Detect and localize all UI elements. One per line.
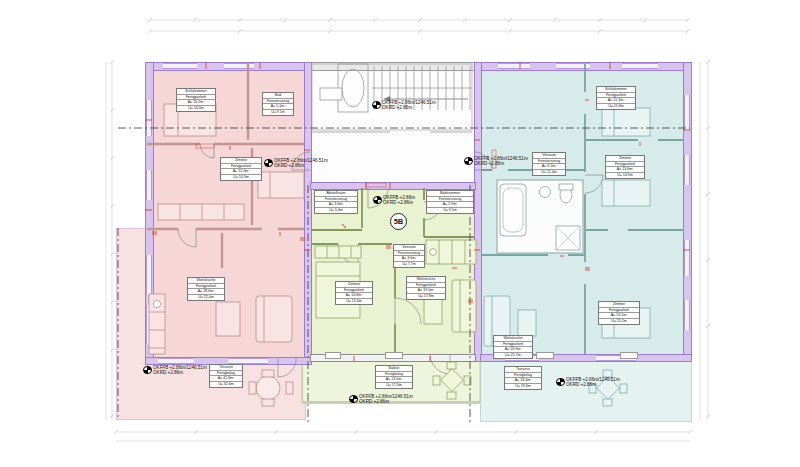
elevation-line: OKRD +2.86m <box>382 105 436 110</box>
survey-point-icon <box>372 101 381 110</box>
window-icon <box>146 100 152 136</box>
window-icon <box>622 63 658 69</box>
window-icon <box>684 155 690 185</box>
elevation-line: OKRD +2.86m <box>274 163 328 168</box>
window-icon <box>684 240 690 276</box>
elevation-note-pink-terrace: OKFFB +2.86m/1246.51mOKRD +2.86m <box>143 365 207 375</box>
elevation-note-green: OKFFB +2.86mOKRD +2.86m <box>373 195 415 205</box>
survey-point-icon <box>373 196 382 205</box>
window-tag <box>385 352 403 359</box>
room-perim: U= 22.4m <box>188 295 224 300</box>
window-icon <box>158 358 194 364</box>
elevation-note-cyan-terrace: OKFFB +2.86m/1246.51mOKRD +2.86m <box>556 377 620 387</box>
room-perim: U= 32.6m <box>210 382 242 387</box>
room-label-cyan-hall: VorraumFeinsteinzeugA= 6.2m²U= 11.4m <box>532 152 566 176</box>
room-perim: U= 9.1m <box>263 110 293 115</box>
room-perim: U= 15.6m <box>336 299 372 304</box>
room-perim: U= 14.3m <box>221 175 261 180</box>
room-label-pink-bed: SchlafzimmerFertigparkettA= 16.2m²U= 16.… <box>176 88 216 112</box>
room-perim: U= 11.4m <box>533 170 565 175</box>
elevation-line: OKRD +2.86m <box>383 200 415 205</box>
wall-top-green <box>310 182 476 190</box>
unit-number-badge: 5B <box>390 213 407 230</box>
room-label-pink-terrace: TerrasseFertigbelagA= 41.8m²U= 32.6m <box>209 364 243 388</box>
elevation-note-stair: OKFFB +2.86m/1246.51mOKRD +2.86m <box>372 100 436 110</box>
survey-point-icon <box>349 395 358 404</box>
window-icon <box>684 300 690 330</box>
room-label-green-balcony: BalkonFertigbelagA= 13.0m²U= 17.3m <box>375 365 413 389</box>
survey-point-icon <box>264 159 273 168</box>
wall-divider-east <box>474 62 482 362</box>
room-label-pink-bad: BadFeinsteinzeugA= 5.1m²U= 9.1m <box>262 92 294 116</box>
wall-top-stair <box>310 62 476 71</box>
stairwell <box>310 62 474 182</box>
elevation-line: OKRD +2.86m <box>566 382 620 387</box>
room-perim: U= 15.2m <box>599 319 639 324</box>
window-icon <box>556 63 590 69</box>
window-icon <box>163 63 197 69</box>
window-icon <box>498 63 530 69</box>
window-tag <box>536 352 554 359</box>
room-perim: U= 16.4m <box>177 106 215 111</box>
unit-cyan <box>480 62 690 360</box>
room-label-cyan-terrace: TerrasseFertigbelagA= 18.4m²U= 19.6m <box>504 366 542 390</box>
window-icon <box>684 95 690 131</box>
room-perim: U= 17.3m <box>376 383 412 388</box>
survey-point-icon <box>556 378 565 387</box>
room-perim: U= 14.9m <box>606 173 644 178</box>
room-perim: U= 17.8m <box>407 294 445 299</box>
window-tag <box>620 352 638 359</box>
room-perim: U= 15.8m <box>597 104 635 109</box>
window-icon <box>224 63 254 69</box>
elevation-line: OKRD +2.86m <box>359 399 413 404</box>
room-label-cyan-bed1: SchlafzimmerFertigparkettA= 15.3m²U= 15.… <box>596 86 636 110</box>
room-label-cyan-bed3: ZimmerFertigparkettA= 14.1m²U= 15.2m <box>598 301 640 325</box>
survey-point-icon <box>464 157 473 166</box>
window-icon <box>146 170 152 200</box>
room-label-green-bad: BadezimmerFeinsteinzeugA= 5.9m²U= 9.5m <box>426 190 474 214</box>
room-perim: U= 19.6m <box>505 384 541 389</box>
room-label-green-living: WohnkücheFertigparkettA= 19.0m²U= 17.8m <box>406 276 446 300</box>
wall-divider-west <box>304 62 312 365</box>
room-perim: U= 9.5m <box>427 208 473 213</box>
window-icon <box>146 255 152 295</box>
room-perim: U= 7.7m <box>394 262 424 267</box>
elevation-line: OKRD +2.86m <box>153 370 207 375</box>
room-label-green-bed: ZimmerFertigparkettA= 14.8m²U= 15.6m <box>335 281 373 305</box>
room-perim: U= 21.7m <box>494 353 532 358</box>
room-label-pink-living: WohnkücheFertigparkettA= 28.6m²U= 22.4m <box>187 277 225 301</box>
survey-point-icon <box>143 366 152 375</box>
window-icon <box>228 358 268 364</box>
room-label-pink-room: ZimmerFertigparkettA= 12.4m²U= 14.3m <box>220 157 262 181</box>
room-label-cyan-bed2: ZimmerFertigparkettA= 13.6m²U= 14.9m <box>605 155 645 179</box>
elevation-note-green-balcony: OKFFB +2.86m/1246.51mOKRD +2.86m <box>349 394 413 404</box>
window-tag <box>325 352 341 359</box>
elevation-line: OKRD +2.86m <box>474 161 528 166</box>
room-perim: U= 5.4m <box>315 208 357 213</box>
room-label-green-hall: VorraumFeinsteinzeugA= 3.6m²U= 7.7m <box>393 244 425 268</box>
room-label-green-store: AbstellraumFeinsteinzeugA= 3.6m²U= 5.4m <box>314 190 358 214</box>
elevation-note-pink: OKFFB +2.86m/1246.51mOKRD +2.86m <box>264 158 328 168</box>
window-icon <box>146 305 152 345</box>
floor-plan-canvas: SchlafzimmerFertigparkettA= 16.2m²U= 16.… <box>0 0 800 467</box>
elevation-note-cyan: OKFFB +2.86m/1246.51mOKRD +2.86m <box>464 156 528 166</box>
room-label-cyan-living: WohnkücheFertigparkettA= 26.9m²U= 21.7m <box>493 335 533 359</box>
